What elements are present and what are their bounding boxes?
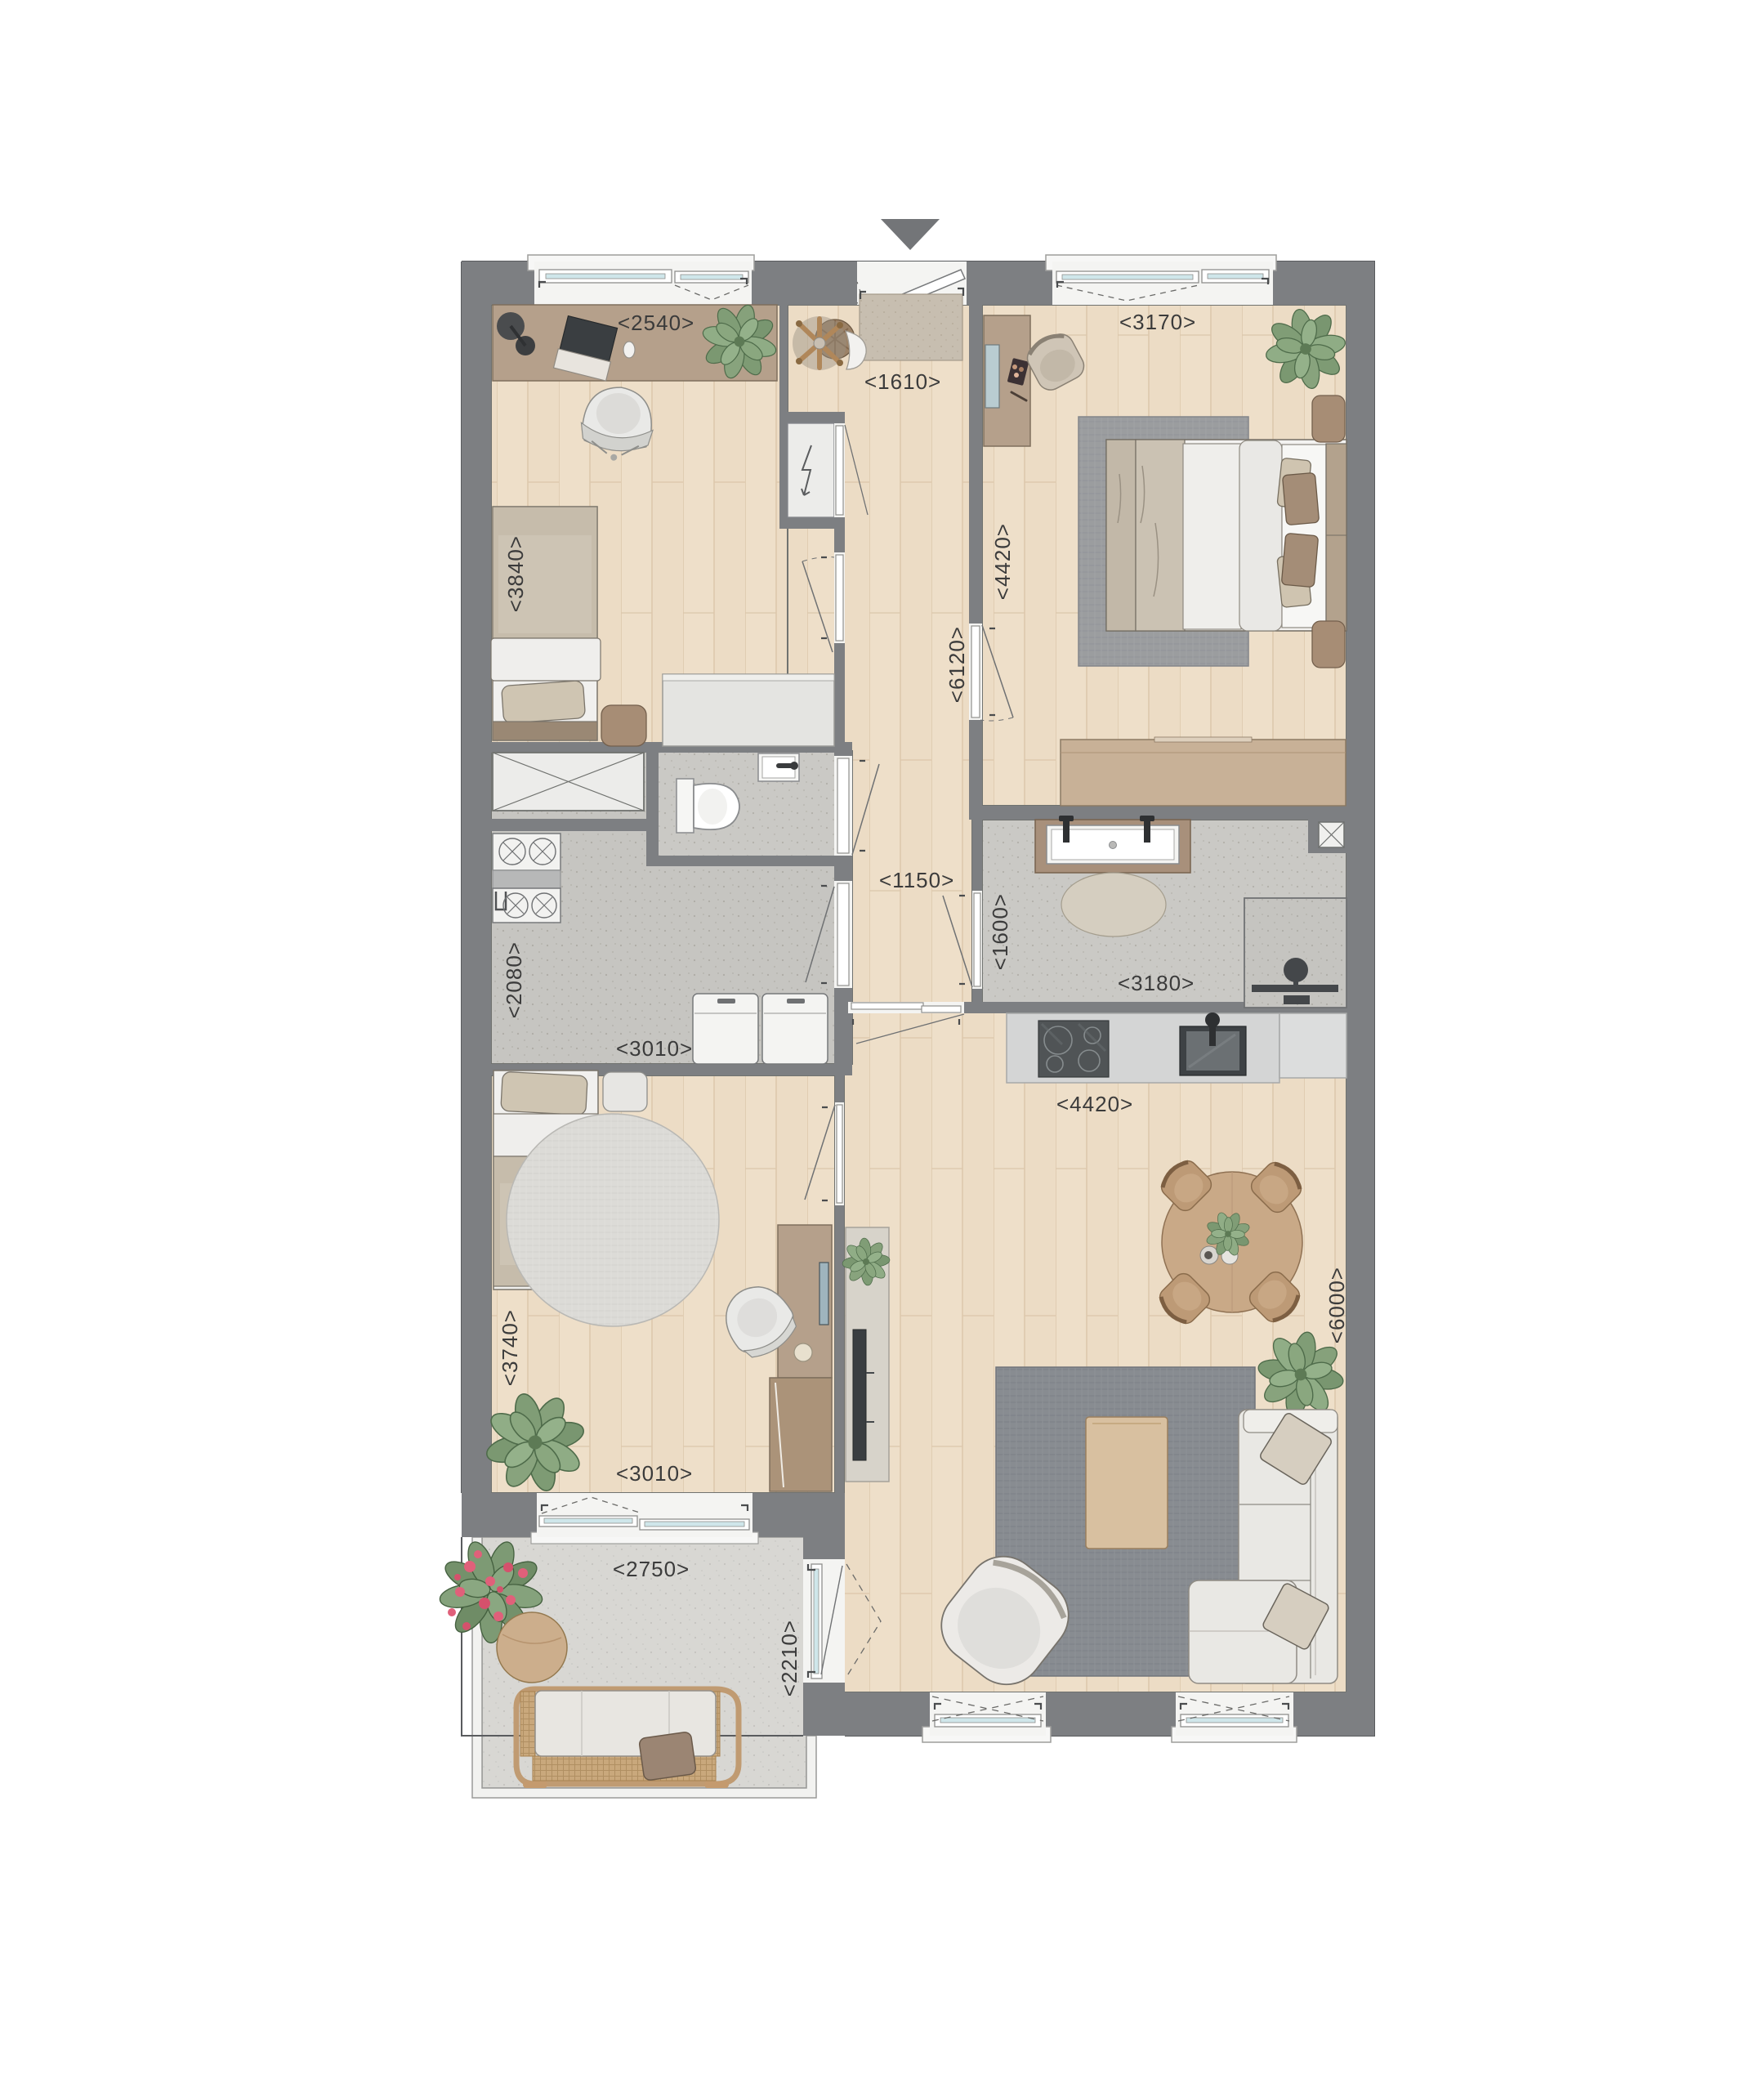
svg-text:<3840>: <3840> [503, 535, 528, 612]
svg-text:<1150>: <1150> [879, 868, 954, 892]
svg-text:<3170>: <3170> [1119, 310, 1196, 334]
svg-text:<4420>: <4420> [990, 523, 1015, 600]
svg-text:<1610>: <1610> [864, 369, 941, 394]
svg-text:<3010>: <3010> [616, 1461, 693, 1486]
svg-text:<3180>: <3180> [1118, 971, 1195, 995]
svg-text:<6120>: <6120> [945, 626, 969, 703]
svg-text:<2540>: <2540> [618, 311, 694, 335]
svg-text:<2080>: <2080> [502, 941, 526, 1018]
svg-text:<3740>: <3740> [498, 1309, 522, 1386]
svg-text:<4420>: <4420> [1056, 1092, 1133, 1116]
svg-text:<1600>: <1600> [988, 893, 1012, 970]
svg-text:<2210>: <2210> [777, 1620, 802, 1696]
svg-text:<3010>: <3010> [616, 1036, 693, 1061]
svg-text:<2750>: <2750> [613, 1557, 690, 1581]
svg-text:<6000>: <6000> [1324, 1267, 1349, 1343]
